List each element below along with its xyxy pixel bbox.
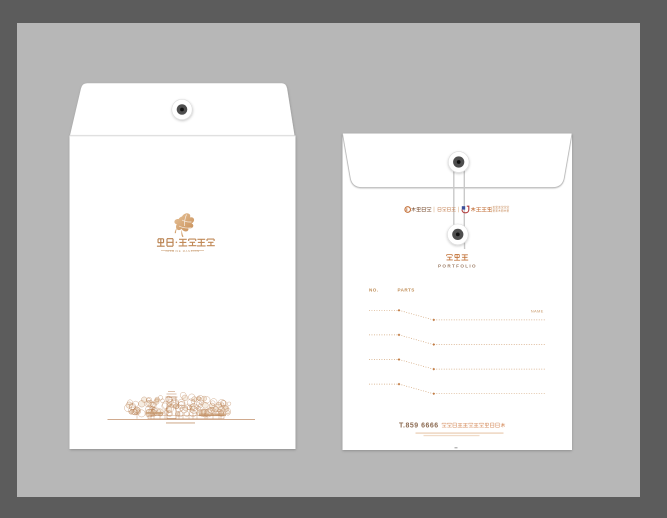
svg-text:NAME: NAME — [531, 309, 544, 314]
svg-text:NO.: NO. — [369, 288, 378, 293]
svg-text:PARTS: PARTS — [398, 288, 415, 293]
svg-text:JASMINE MANSION: JASMINE MANSION — [165, 249, 200, 253]
svg-text:PORTFOLIO: PORTFOLIO — [438, 264, 477, 269]
svg-text:T.859 6666: T.859 6666 — [399, 423, 439, 430]
